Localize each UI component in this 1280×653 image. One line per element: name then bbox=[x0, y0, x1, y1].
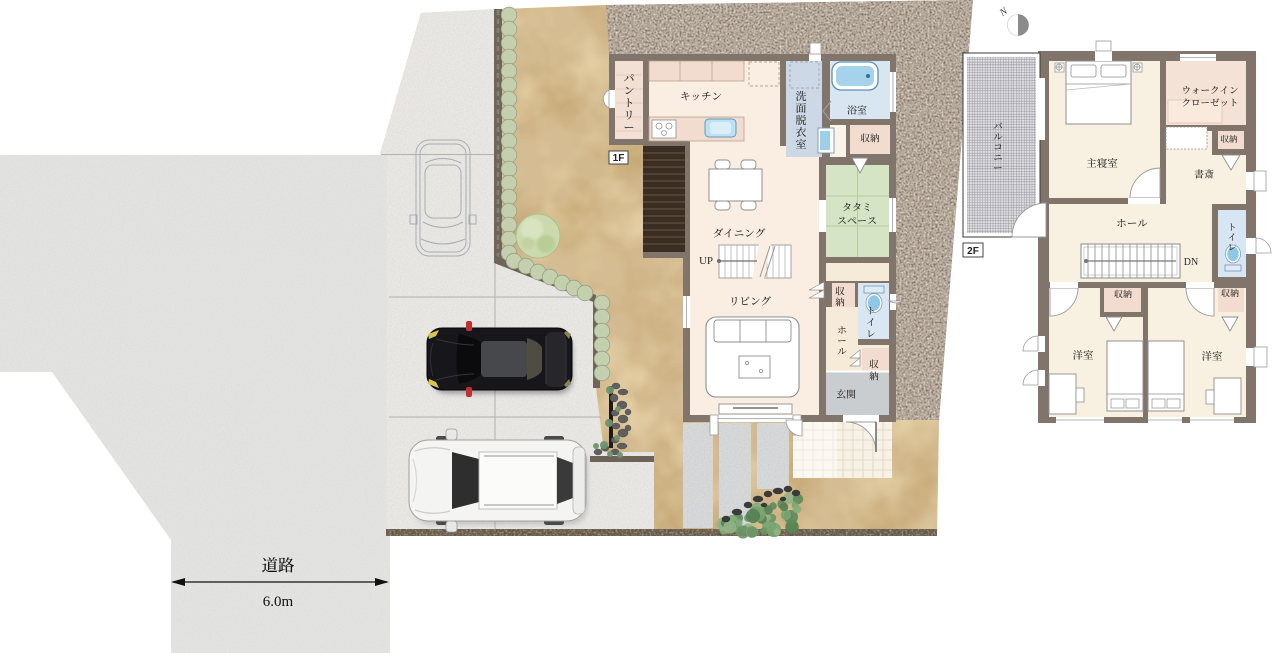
svg-text:1F: 1F bbox=[613, 153, 625, 164]
svg-text:2F: 2F bbox=[967, 246, 979, 257]
svg-text:UP: UP bbox=[699, 255, 713, 267]
svg-text:6.0m: 6.0m bbox=[263, 594, 294, 610]
svg-text:DN: DN bbox=[1184, 257, 1198, 268]
